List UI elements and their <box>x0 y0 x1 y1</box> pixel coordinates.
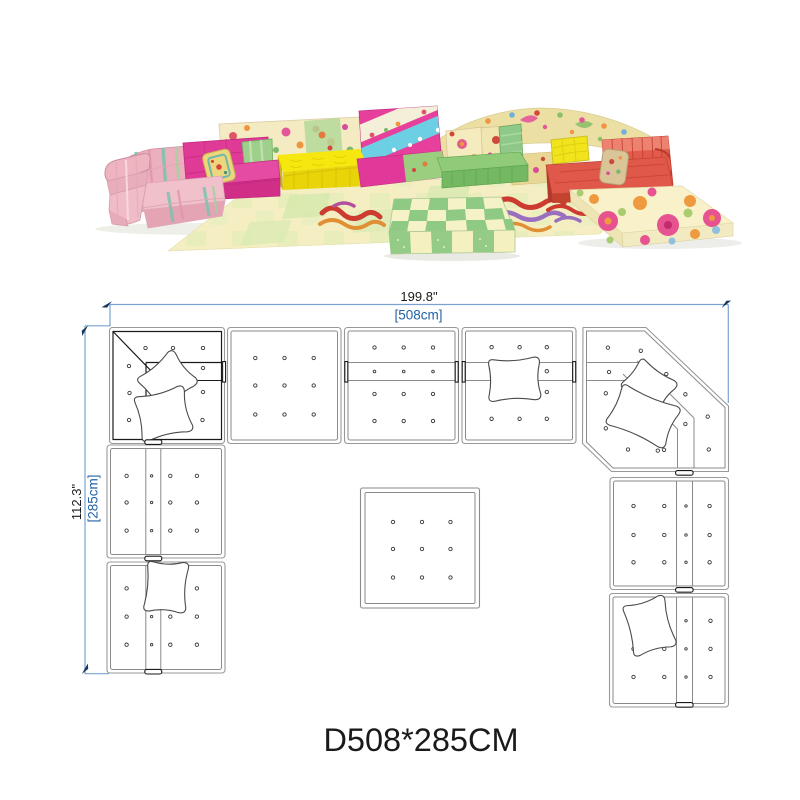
svg-text:199.8": 199.8" <box>400 289 438 304</box>
svg-text:D508*285CM: D508*285CM <box>323 722 518 758</box>
svg-text:112.3": 112.3" <box>69 484 84 521</box>
svg-text:[285cm]: [285cm] <box>86 474 101 522</box>
svg-text:[508cm]: [508cm] <box>394 308 442 323</box>
